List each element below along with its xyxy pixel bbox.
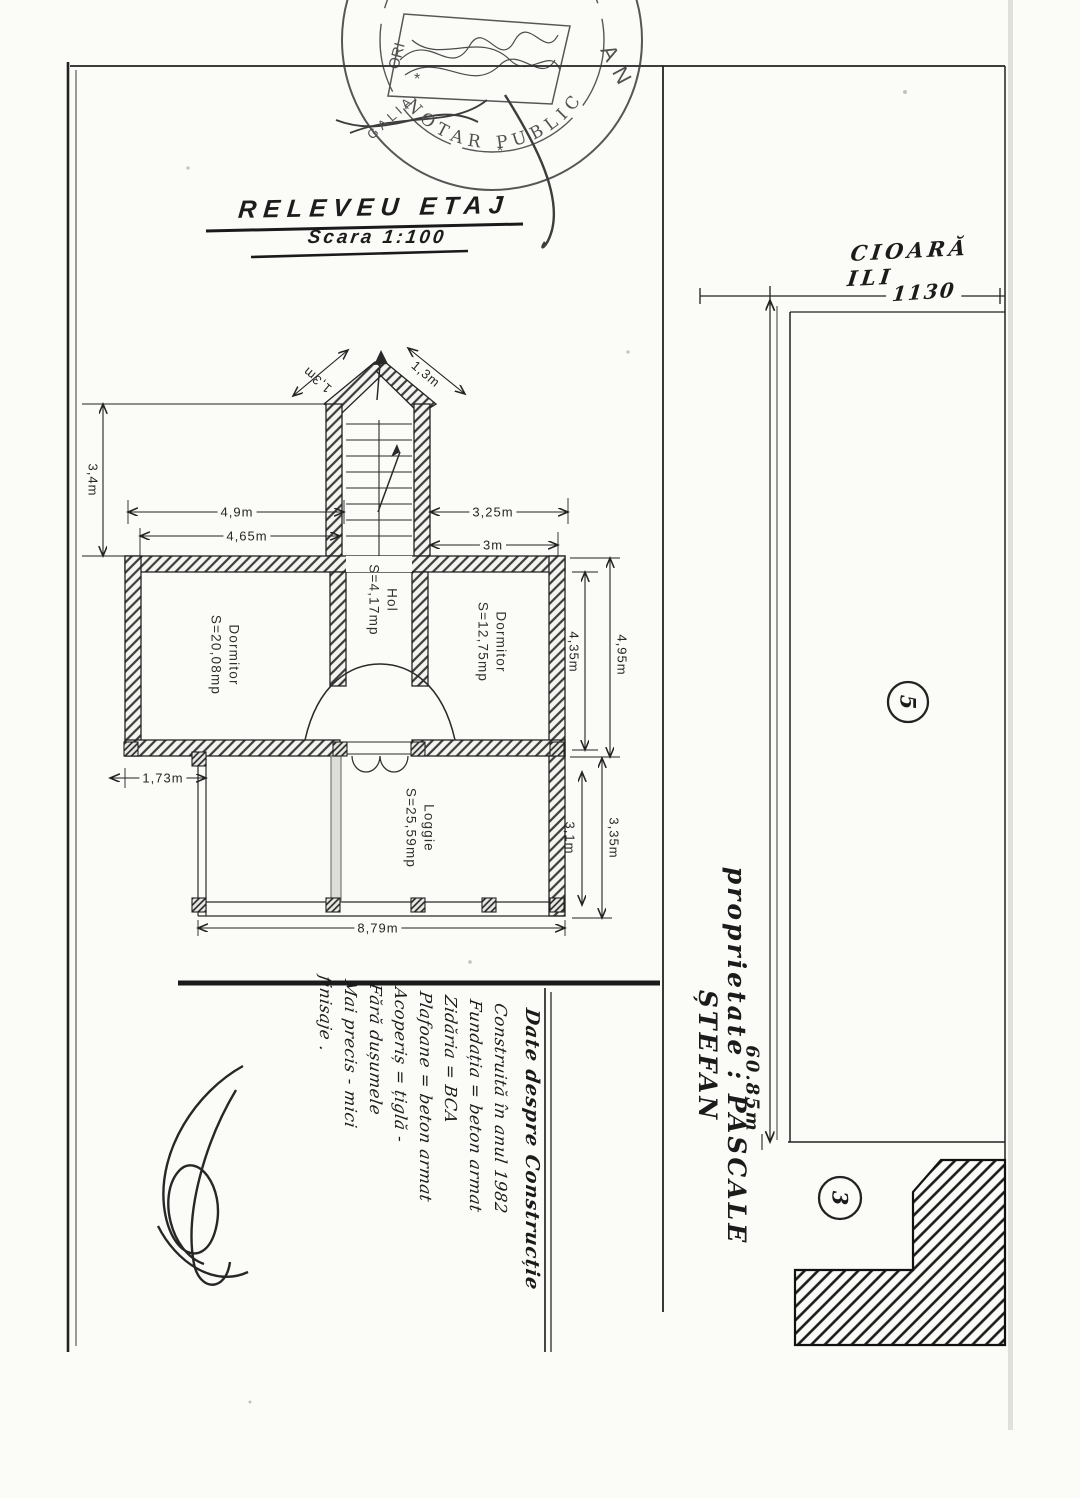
room-name: Loggie bbox=[422, 804, 437, 852]
room-area: S=25,59mp bbox=[404, 788, 419, 868]
dim-loggia-right-inner: 3,1m bbox=[563, 822, 578, 855]
stamp-star-1: * bbox=[414, 71, 420, 88]
dim-loggia-width: 8,79m bbox=[354, 921, 401, 936]
stamp-emblem-scribble bbox=[400, 32, 560, 76]
depth-dim: 60.85m bbox=[742, 1045, 763, 1132]
stamp-star-2: * bbox=[497, 143, 503, 160]
parcel-number-5: 5 bbox=[896, 695, 921, 710]
signature-scribble bbox=[158, 1066, 248, 1285]
dim-right-inner: 4,35m bbox=[567, 631, 582, 672]
notes-line: finisaje . bbox=[313, 974, 338, 1330]
hatched-building bbox=[795, 1160, 1005, 1345]
notes-line: Acoperiș = țiglă - bbox=[388, 986, 413, 1342]
columns bbox=[124, 742, 564, 912]
dim-left-height: 3,4m bbox=[86, 464, 101, 497]
loggia-structure bbox=[198, 742, 565, 916]
room-name: Dormitor bbox=[494, 611, 509, 672]
construction-notes: Date despre Construcție Construită în an… bbox=[288, 992, 544, 1344]
room-area: S=12,75mp bbox=[476, 602, 491, 682]
page-scale: Scara 1:100 bbox=[306, 227, 448, 249]
notes-line: Plafoane = beton armat bbox=[413, 990, 438, 1346]
dim-loggia-right-outer: 3,35m bbox=[607, 817, 622, 858]
dim-top-outer: 4,9m bbox=[218, 505, 257, 520]
dim-top-right-inner: 3m bbox=[480, 538, 506, 553]
notes-line: Mai precis - mici bbox=[338, 978, 363, 1334]
notes-line: Zidăria = BCA bbox=[438, 994, 463, 1350]
dimension-lines bbox=[82, 348, 620, 936]
room-label-dormitor-right: Dormitor S=12,75mp bbox=[474, 602, 509, 682]
parcel-number-3: 3 bbox=[828, 1191, 853, 1206]
room-name: Dormitor bbox=[227, 624, 242, 685]
dim-top-inner: 4,65m bbox=[223, 529, 270, 544]
door-leaf-arcs bbox=[352, 756, 408, 772]
room-label-dormitor-left: Dormitor S=20,08mp bbox=[207, 615, 242, 695]
dim-top-right-outer: 3,25m bbox=[469, 505, 516, 520]
scanned-document-page: NOTAR PUBLIC ORI GALIA AN * * bbox=[0, 0, 1080, 1498]
notes-line: Construită în anul 1982 bbox=[488, 1001, 513, 1357]
notes-line: Fundația = beton armat bbox=[463, 997, 488, 1353]
room-label-loggie: Loggie S=25,59mp bbox=[402, 788, 437, 868]
room-area: S=20,08mp bbox=[209, 615, 224, 695]
room-name: Hol bbox=[385, 588, 400, 612]
room-label-hol: Hol S=4,17mp bbox=[365, 564, 400, 636]
room-area: S=4,17mp bbox=[367, 564, 382, 636]
notes-heading: Date despre Construcție bbox=[519, 1006, 544, 1362]
notes-line: Fără dușumele bbox=[363, 982, 388, 1338]
page-title: RELEVEU ETAJ bbox=[237, 191, 511, 225]
door-swing-arch bbox=[305, 664, 455, 740]
dim-right-outer: 4,95m bbox=[615, 634, 630, 675]
stamp-letters-right: AN bbox=[596, 41, 642, 97]
dim-offset-left: 1,73m bbox=[139, 771, 186, 786]
